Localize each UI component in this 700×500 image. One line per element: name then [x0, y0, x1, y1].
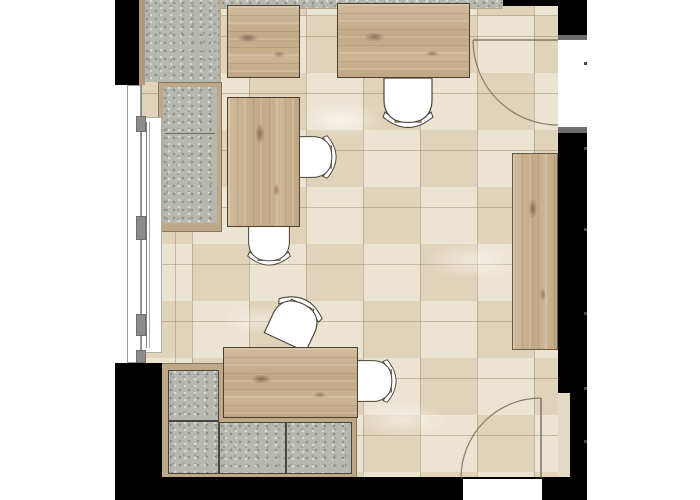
door-opening-bottom — [463, 479, 542, 500]
cabinet-divider — [165, 133, 215, 134]
desk-top-left — [227, 5, 300, 78]
cabinet-section — [168, 421, 219, 474]
cabinet-section — [286, 422, 352, 474]
wall-left-top — [115, 0, 139, 85]
cabinet-section — [219, 422, 286, 474]
floor-plan-canvas — [0, 0, 700, 500]
window-joint — [136, 216, 146, 240]
cabinet-section — [168, 370, 219, 421]
window-joint — [136, 350, 146, 363]
window-joint — [136, 314, 146, 336]
floor-step-right — [558, 393, 570, 477]
window-glass-line — [146, 122, 147, 348]
window-glass-line — [149, 122, 150, 348]
desk-bottom — [223, 347, 358, 418]
wall-finish-strip — [139, 0, 145, 85]
window-joint — [136, 116, 146, 132]
wall-top-edge — [503, 0, 558, 6]
door-opening-right — [558, 40, 587, 127]
door-jamb-cap — [558, 127, 587, 133]
desk-middle-left — [227, 97, 300, 227]
sideboard-right-wall — [512, 153, 558, 350]
cabinet-run-left-lower — [158, 82, 222, 232]
cabinet-granite-top — [163, 87, 217, 223]
desk-top-right — [337, 3, 470, 78]
cabinet-run-left-upper — [145, 0, 221, 82]
